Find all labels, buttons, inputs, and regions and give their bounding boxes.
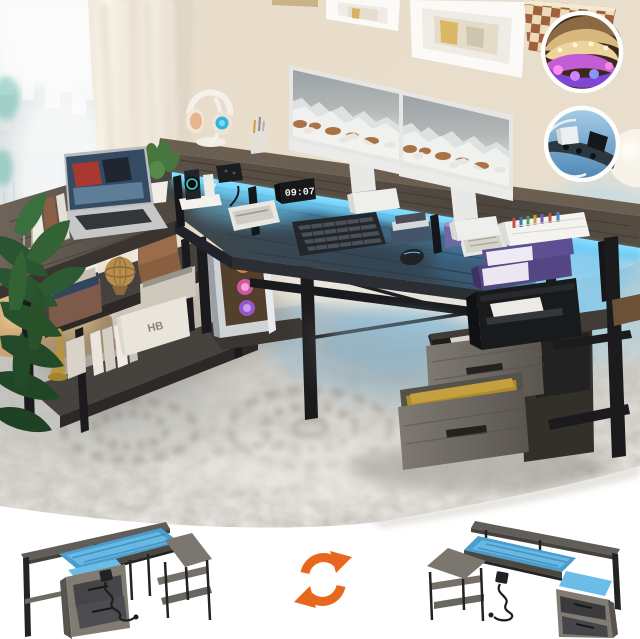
svg-text:09:07: 09:07 bbox=[285, 187, 316, 200]
